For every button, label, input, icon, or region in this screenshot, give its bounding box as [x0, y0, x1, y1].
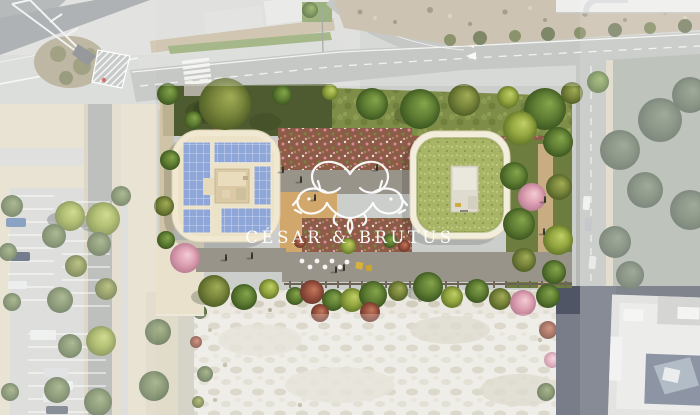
- brand-name: CÉSAR & BRUTUS: [245, 227, 454, 247]
- project-site: [154, 78, 583, 322]
- fade-overlay: [0, 0, 700, 415]
- aerial-site-plan: CÉSAR & BRUTUS: [0, 0, 700, 415]
- aerial-render: CÉSAR & BRUTUS: [0, 0, 700, 415]
- rooftop-structure: [451, 166, 478, 212]
